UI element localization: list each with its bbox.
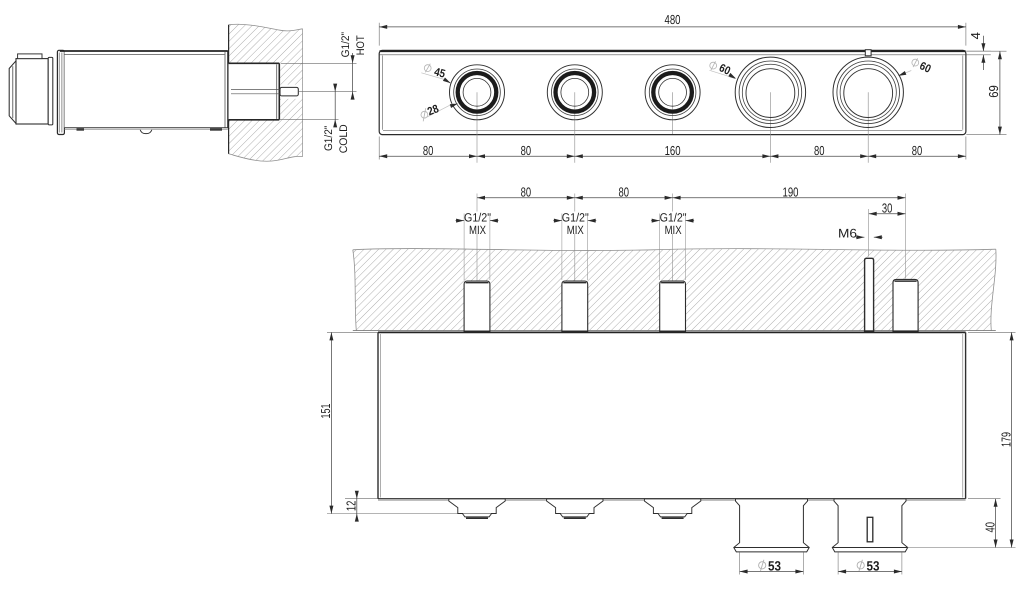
svg-text:179: 179 bbox=[998, 432, 1013, 447]
svg-text:480: 480 bbox=[665, 12, 681, 27]
svg-text:80: 80 bbox=[423, 143, 434, 158]
svg-text:80: 80 bbox=[912, 143, 923, 158]
svg-text:151: 151 bbox=[318, 404, 333, 419]
svg-text:80: 80 bbox=[618, 184, 629, 199]
svg-text:MIX: MIX bbox=[469, 223, 486, 237]
svg-text:80: 80 bbox=[814, 143, 825, 158]
svg-text:G1/2": G1/2" bbox=[464, 210, 491, 224]
svg-text:53: 53 bbox=[768, 558, 781, 573]
svg-text:HOT: HOT bbox=[355, 35, 367, 55]
svg-text:G1/2": G1/2" bbox=[323, 125, 335, 151]
svg-text:30: 30 bbox=[882, 200, 893, 215]
svg-text:80: 80 bbox=[521, 184, 532, 199]
svg-text:190: 190 bbox=[783, 184, 799, 199]
svg-text:160: 160 bbox=[665, 143, 681, 158]
svg-text:MIX: MIX bbox=[567, 223, 584, 237]
svg-text:53: 53 bbox=[867, 558, 880, 573]
svg-text:G1/2": G1/2" bbox=[562, 210, 589, 224]
svg-text:80: 80 bbox=[521, 143, 532, 158]
svg-text:4: 4 bbox=[968, 32, 983, 39]
svg-text:G1/2": G1/2" bbox=[340, 32, 352, 58]
svg-text:69: 69 bbox=[986, 85, 1001, 98]
svg-text:40: 40 bbox=[983, 522, 998, 533]
svg-text:COLD: COLD bbox=[338, 124, 350, 153]
svg-text:12: 12 bbox=[344, 501, 359, 512]
svg-text:G1/2": G1/2" bbox=[660, 210, 687, 224]
svg-text:MIX: MIX bbox=[665, 223, 682, 237]
svg-text:M6: M6 bbox=[838, 227, 857, 241]
